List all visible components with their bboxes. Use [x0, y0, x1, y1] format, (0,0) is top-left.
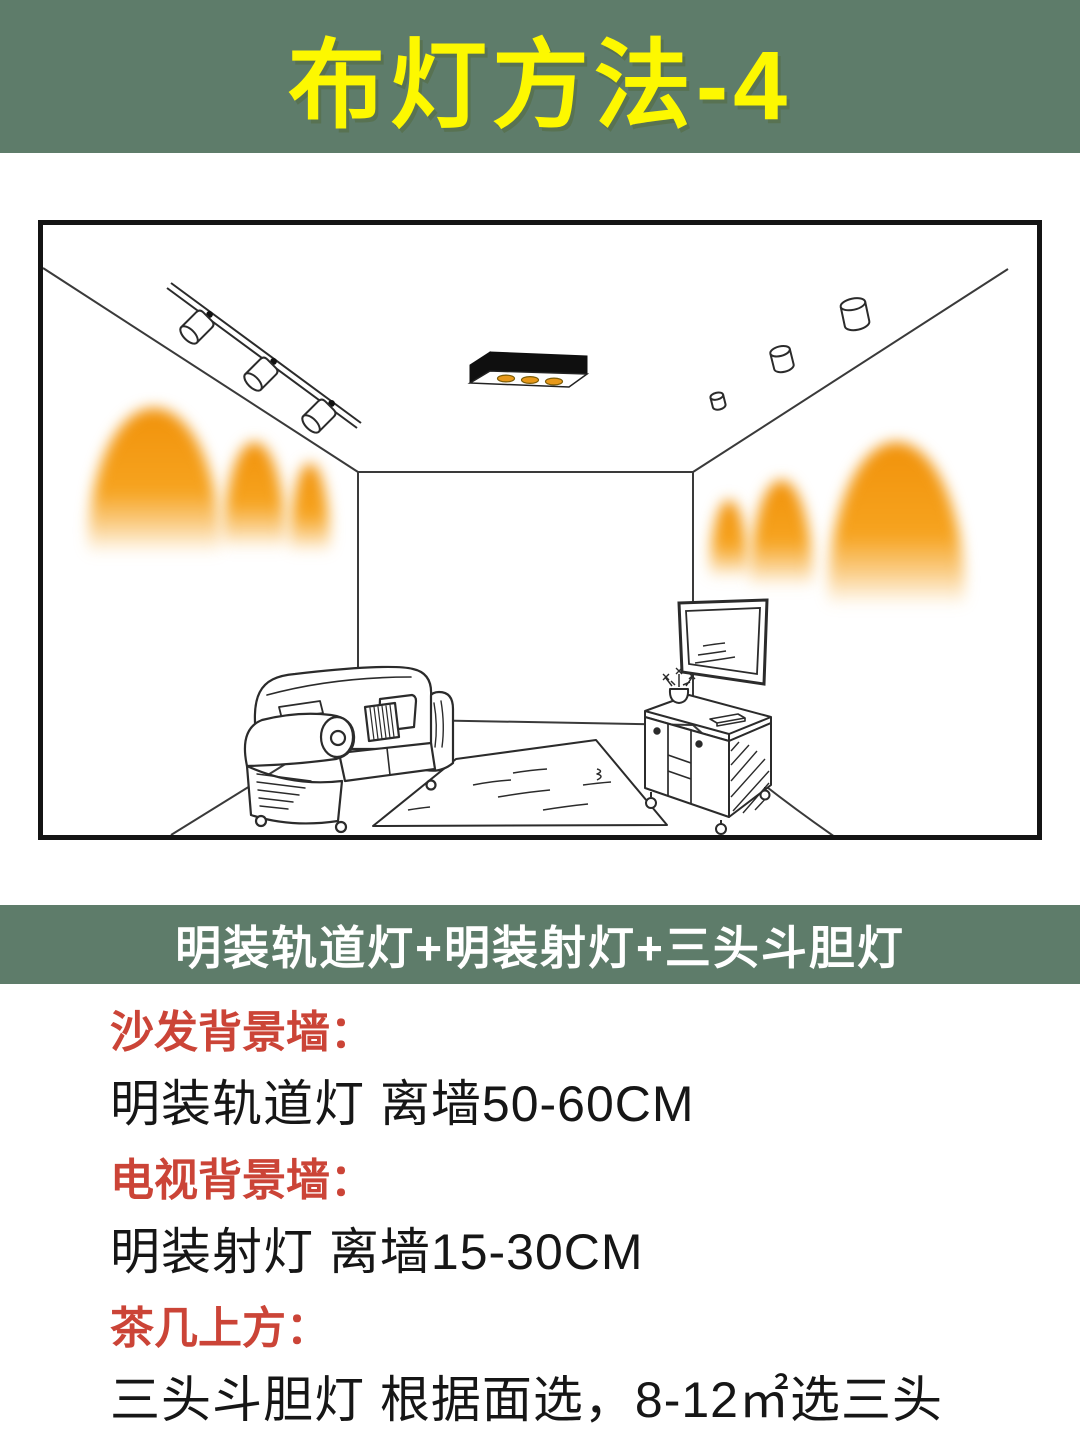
note-detail-track-light: 明装轨道灯 离墙50-60CM: [110, 1075, 1020, 1133]
spotlight-large: [840, 296, 871, 332]
note-heading-sofa-wall: 沙发背景墙：: [110, 1009, 1020, 1057]
spotlight-medium: [769, 344, 795, 374]
track-spotlight-head: [177, 304, 219, 346]
tv: [679, 600, 767, 684]
tv-cabinet: [645, 668, 771, 834]
spotlight-small: [710, 391, 727, 411]
note-heading-tv-wall: 电视背景墙：: [110, 1157, 1020, 1205]
note-heading-coffee-table: 茶几上方：: [110, 1305, 1020, 1353]
notes-section: 沙发背景墙： 明装轨道灯 离墙50-60CM 电视背景墙： 明装射灯 离墙15-…: [110, 985, 1020, 1449]
room-line-art: [43, 225, 1037, 835]
method-banner-label: 明装轨道灯+明装射灯+三头斗胆灯: [175, 912, 905, 978]
method-banner: 明装轨道灯+明装射灯+三头斗胆灯: [0, 905, 1080, 984]
three-head-spotlight-fixture: [470, 352, 587, 387]
top-banner: 布灯方法-4: [0, 0, 1080, 153]
surface-mounted-spotlights: [710, 296, 871, 411]
track-spotlight-head: [299, 393, 341, 435]
page-title: 布灯方法-4: [288, 6, 792, 147]
note-detail-three-head: 三头斗胆灯 根据面选，8-12㎡选三头: [110, 1371, 1020, 1429]
track-light: [167, 283, 361, 436]
track-spotlight-head: [241, 351, 283, 393]
room-illustration: [38, 220, 1042, 840]
note-detail-spotlight: 明装射灯 离墙15-30CM: [110, 1223, 1020, 1281]
